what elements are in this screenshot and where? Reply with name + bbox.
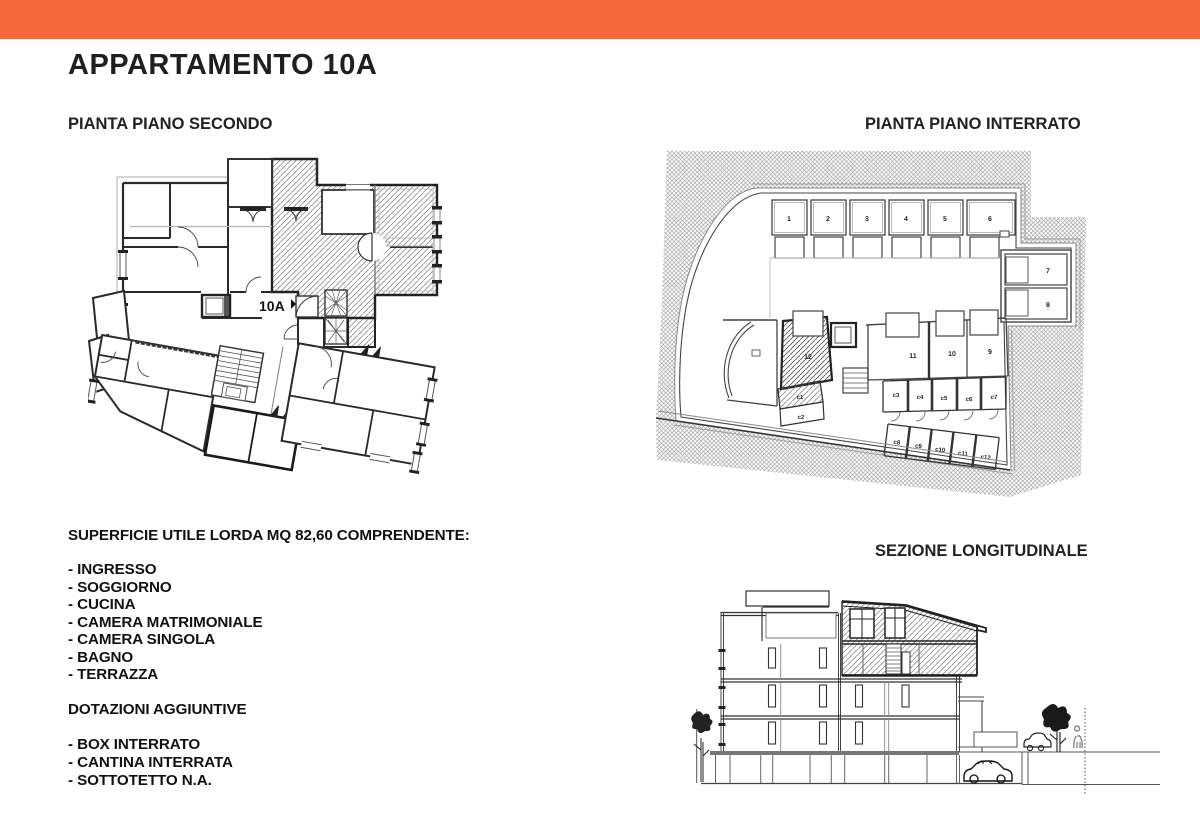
svg-text:6: 6 [988, 216, 992, 223]
svg-text:c12: c12 [980, 454, 991, 462]
svg-text:9: 9 [988, 349, 992, 356]
svg-text:10A: 10A [259, 298, 285, 314]
svg-text:10: 10 [948, 351, 956, 358]
svg-text:c3: c3 [893, 392, 900, 399]
svg-text:4: 4 [904, 216, 908, 223]
svg-text:c2: c2 [798, 414, 805, 421]
svg-text:5: 5 [943, 216, 947, 223]
svg-text:12: 12 [804, 354, 812, 361]
svg-text:2: 2 [826, 216, 830, 223]
svg-text:c6: c6 [966, 396, 973, 403]
svg-text:c5: c5 [941, 395, 948, 402]
svg-text:7: 7 [1046, 268, 1050, 275]
svg-text:11: 11 [909, 353, 917, 360]
svg-text:c4: c4 [917, 394, 924, 401]
svg-text:c1: c1 [797, 394, 804, 401]
svg-text:8: 8 [1046, 302, 1050, 309]
svg-text:1: 1 [787, 216, 791, 223]
svg-text:c11: c11 [958, 450, 969, 458]
svg-text:c7: c7 [991, 394, 998, 401]
svg-text:3: 3 [865, 216, 869, 223]
